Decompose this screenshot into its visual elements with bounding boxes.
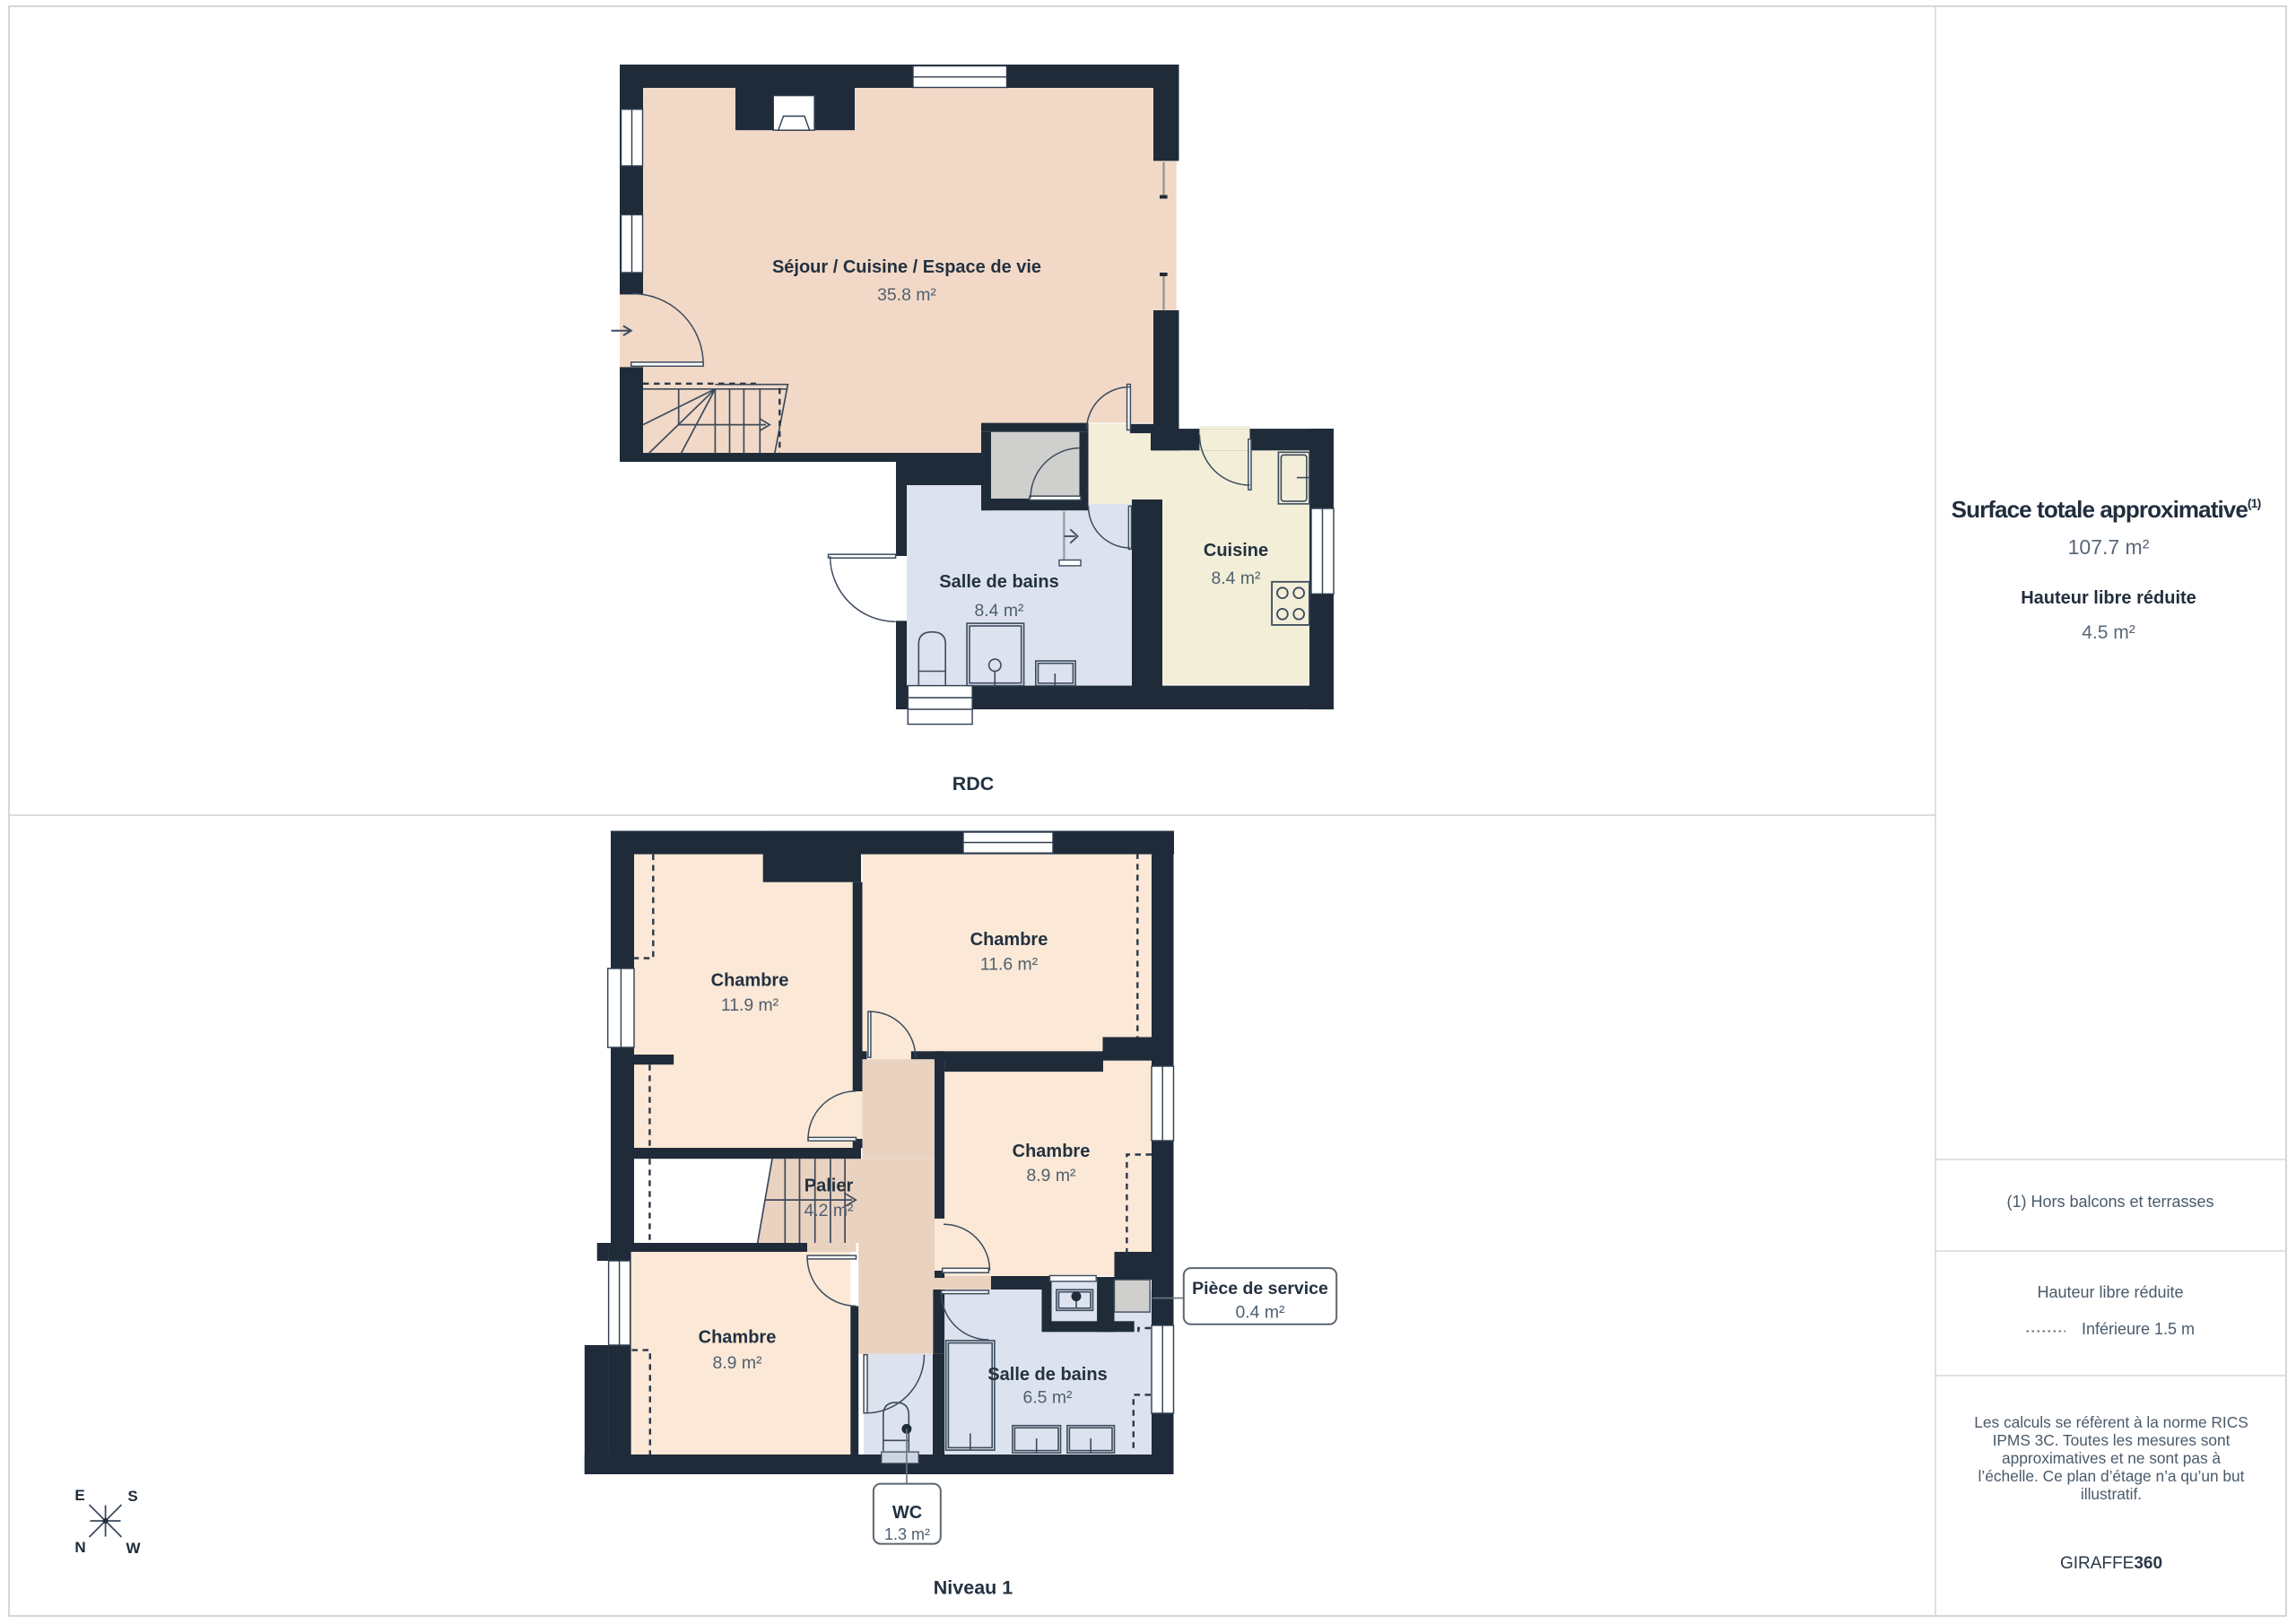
svg-text:35.8 m²: 35.8 m² [877,285,936,305]
svg-text:Pièce de service: Pièce de service [1192,1279,1328,1298]
svg-text:Surface totale approximative(1: Surface totale approximative(1) [1952,496,2261,523]
svg-text:6.5 m²: 6.5 m² [1023,1388,1073,1408]
svg-text:Salle de bains: Salle de bains [939,572,1058,592]
svg-text:Chambre: Chambre [699,1327,777,1347]
svg-text:(1) Hors balcons et terrasses: (1) Hors balcons et terrasses [2006,1193,2213,1211]
svg-text:illustratif.: illustratif. [2081,1485,2142,1503]
svg-text:Inférieure 1.5 m: Inférieure 1.5 m [2082,1320,2195,1338]
svg-text:11.9 m²: 11.9 m² [721,995,779,1015]
svg-text:4.5 m²: 4.5 m² [2082,622,2135,643]
svg-text:8.9 m²: 8.9 m² [1027,1166,1076,1185]
svg-text:Séjour / Cuisine / Espace de v: Séjour / Cuisine / Espace de vie [772,257,1041,277]
svg-text:GIRAFFE360: GIRAFFE360 [2060,1554,2162,1573]
svg-text:Cuisine: Cuisine [1204,541,1268,560]
svg-text:IPMS 3C. Toutes les mesures so: IPMS 3C. Toutes les mesures sont [1993,1431,2231,1449]
svg-text:8.4 m²: 8.4 m² [1212,569,1261,588]
svg-text:S: S [127,1488,137,1505]
svg-text:Chambre: Chambre [1013,1142,1091,1161]
svg-text:Chambre: Chambre [970,930,1048,950]
svg-text:8.9 m²: 8.9 m² [713,1353,762,1373]
svg-text:8.4 m²: 8.4 m² [975,601,1024,621]
svg-text:WC: WC [892,1503,922,1523]
svg-text:Salle de bains: Salle de bains [987,1365,1107,1385]
svg-text:Palier: Palier [804,1177,854,1196]
svg-text:E: E [74,1487,84,1504]
svg-text:Hauteur libre réduite: Hauteur libre réduite [2037,1283,2183,1301]
svg-text:107.7 m²: 107.7 m² [2068,535,2150,559]
svg-text:W: W [126,1540,141,1557]
svg-text:4.2 m²: 4.2 m² [804,1201,854,1220]
svg-text:N: N [74,1539,85,1556]
svg-text:Niveau 1: Niveau 1 [934,1577,1013,1599]
svg-text:Hauteur libre réduite: Hauteur libre réduite [2021,588,2196,608]
svg-text:Les calculs se réfèrent à la n: Les calculs se réfèrent à la norme RICS [1974,1413,2248,1431]
svg-text:0.4 m²: 0.4 m² [1236,1303,1285,1323]
svg-text:approximatives et ne sont pas: approximatives et ne sont pas à [2002,1449,2221,1467]
svg-text:l’échelle. Ce plan d’étage n’a: l’échelle. Ce plan d’étage n’a qu’un but [1979,1467,2245,1485]
svg-text:11.6 m²: 11.6 m² [980,955,1039,975]
svg-text:Chambre: Chambre [711,971,789,991]
svg-text:1.3 m²: 1.3 m² [884,1525,930,1543]
svg-text:RDC: RDC [952,773,995,795]
